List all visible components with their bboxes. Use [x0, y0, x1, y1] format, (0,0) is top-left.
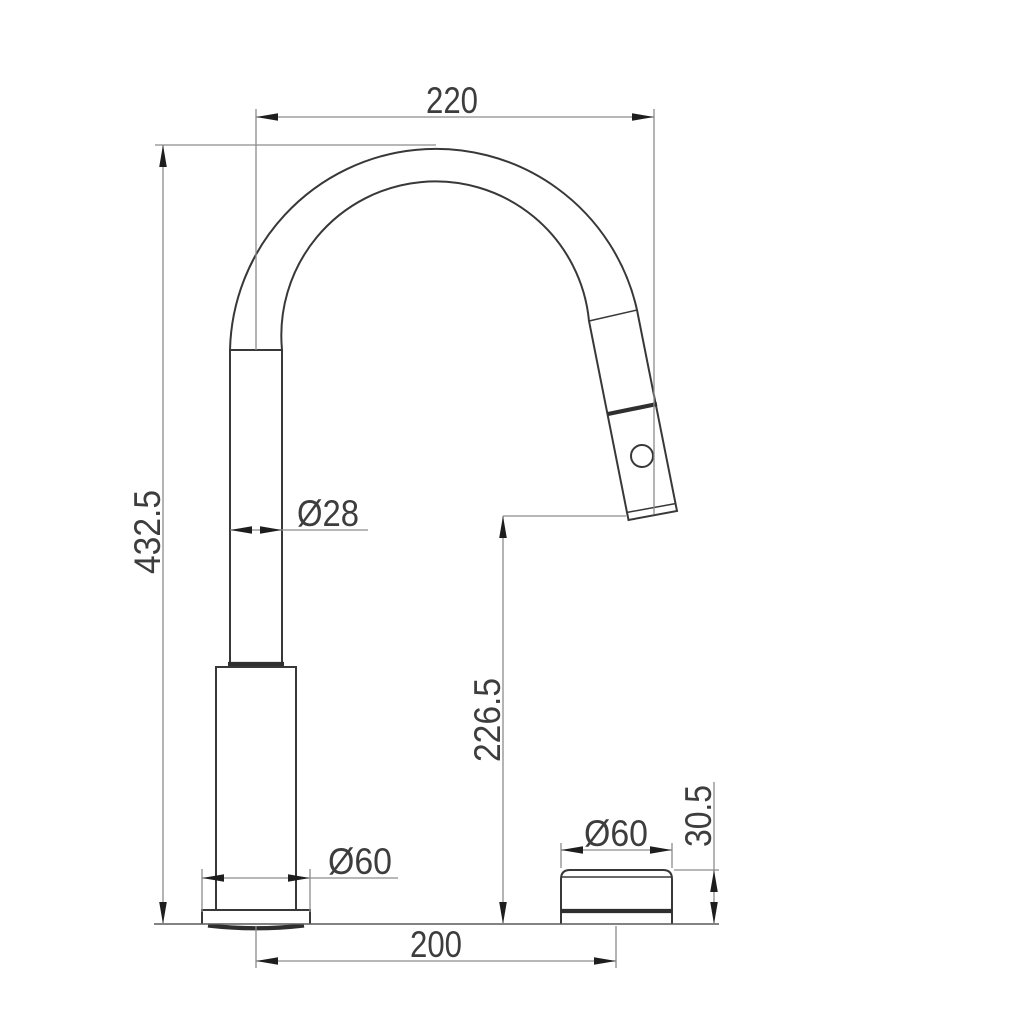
- arrowhead: [159, 145, 167, 167]
- dim-label-knob-height: 30.5: [678, 785, 719, 847]
- arrowhead: [650, 846, 672, 854]
- arrowhead: [159, 902, 167, 924]
- base-cylinder-outline: [216, 667, 296, 910]
- arrowhead: [561, 846, 583, 854]
- dim-hole-spacing: 200: [256, 924, 616, 968]
- spray-head-collar-band: [608, 404, 657, 414]
- dim-outlet-height: 226.5: [467, 516, 626, 924]
- arrowhead: [260, 526, 282, 534]
- arrowhead: [632, 113, 654, 121]
- dim-pipe-diameter: Ø28: [230, 493, 368, 534]
- arrowhead: [256, 957, 278, 965]
- arrowhead: [499, 902, 507, 924]
- spray-head-tip-line: [627, 504, 677, 513]
- dim-label-hole-spacing: 200: [410, 924, 462, 965]
- spray-head-seam-upper: [589, 310, 637, 321]
- dim-label-pipe-diameter: Ø28: [297, 493, 359, 534]
- handle-knob-outline: [561, 870, 672, 924]
- dim-label-overall-height: 432.5: [127, 490, 168, 574]
- faucet-outline-group: [154, 149, 719, 928]
- arrowhead: [499, 516, 507, 538]
- base-flange-outline: [202, 910, 310, 924]
- arrowhead: [202, 874, 224, 882]
- arrowhead: [710, 870, 718, 892]
- arrowhead: [230, 526, 252, 534]
- dim-knob-height: 30.5: [674, 782, 719, 924]
- dim-knob-diameter: Ø60: [561, 813, 672, 868]
- dim-base-diameter: Ø60: [202, 841, 398, 912]
- arrowhead: [288, 874, 310, 882]
- faucet-spout-path: [230, 149, 677, 520]
- dim-label-knob-diameter: Ø60: [584, 813, 648, 854]
- spray-button-icon: [631, 445, 653, 467]
- arrowhead: [256, 113, 278, 121]
- dim-label-base-diameter: Ø60: [328, 841, 392, 882]
- technical-drawing-canvas: 220 432.5 Ø28 226.5 Ø60 Ø: [0, 0, 1024, 1024]
- drawing-canvas: 220 432.5 Ø28 226.5 Ø60 Ø: [0, 0, 1024, 1024]
- dim-label-outlet-height: 226.5: [467, 678, 508, 762]
- arrowhead: [710, 902, 718, 924]
- dim-label-spout-reach: 220: [426, 80, 478, 121]
- arrowhead: [594, 957, 616, 965]
